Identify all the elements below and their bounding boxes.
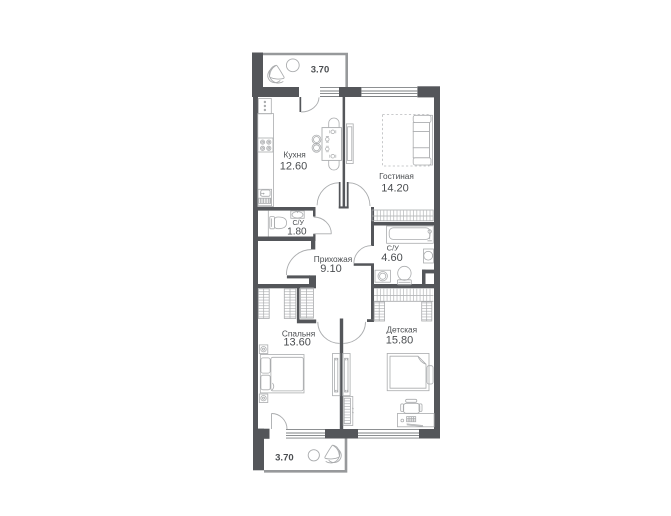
svg-text:3.70: 3.70 [311, 65, 330, 76]
svg-text:14.20: 14.20 [381, 183, 409, 195]
svg-text:9.10: 9.10 [320, 263, 341, 275]
svg-text:15.80: 15.80 [386, 335, 414, 347]
svg-text:3.70: 3.70 [275, 453, 294, 464]
svg-text:Кухня: Кухня [283, 150, 305, 160]
svg-text:Гостиная: Гостиная [379, 171, 414, 181]
svg-text:12.60: 12.60 [280, 160, 308, 172]
svg-text:13.60: 13.60 [283, 337, 311, 349]
svg-text:1.80: 1.80 [287, 226, 307, 237]
svg-text:Детская: Детская [386, 324, 417, 334]
svg-text:4.60: 4.60 [381, 252, 402, 264]
